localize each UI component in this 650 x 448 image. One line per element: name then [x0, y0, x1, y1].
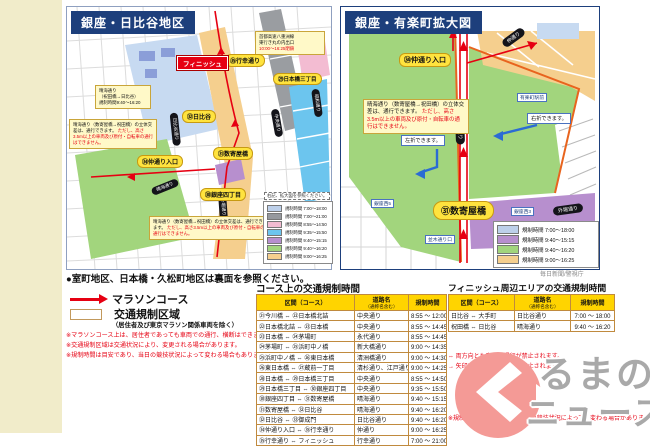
- regulation-zone-icon: [70, 309, 102, 320]
- cell-section: 日比谷 ⇔ 大手町: [449, 311, 515, 321]
- table-row: ㉚銀座四丁目 ⇔ ㉛数寄屋橋晴海通り9:40 〜 15:15: [257, 394, 447, 404]
- kuruma-news-logo: るまの ニュース: [452, 348, 650, 433]
- warning-line: ※規制時間は目安であり、当日の競技状況によって変わる場合もあります。: [66, 351, 277, 361]
- cell-road: 中央通り: [355, 321, 409, 331]
- map-right-title: 銀座・有楽町拡大図: [345, 11, 482, 34]
- legend-swatch: [497, 225, 519, 234]
- legend-row: 規制時間 7:00〜18:00: [497, 225, 595, 234]
- cell-section: ㉛数寄屋橋 ⇔ ㉜日比谷: [257, 404, 355, 414]
- regulation-zone-sub: （居住者及び東京マラソン関係車両を除く）: [112, 320, 238, 329]
- cell-road: 中央通り: [355, 373, 409, 383]
- cell-section: ㉒日本橋北詰 ⇔ ㉓日本橋: [257, 321, 355, 331]
- note-grade-crossing-small: 晴海通り（数寄屋橋→祝田橋）の立体交差は、通行できます。 ただし、高さ3.5m以…: [69, 119, 157, 149]
- callout-sukiyabashi: ㉛数寄屋橋: [433, 201, 494, 220]
- col-time: 規制時間: [409, 295, 447, 311]
- legend-swatch: [267, 253, 282, 260]
- course-table-title: コース上の交通規制時間: [256, 281, 360, 295]
- label-ginza-west5: 銀座西5: [371, 199, 394, 208]
- course-table: 区間（コース） 道路名（通称名含む） 規制時間 ㉑今川橋 ⇔ ㉒日本橋北詰中央通…: [256, 294, 447, 446]
- legend-label: 規制時間 9:40〜15:15: [285, 238, 327, 244]
- cell-section: ㉟行幸通り ⇔ フィニッシュ: [257, 435, 355, 445]
- legend-swatch: [267, 213, 282, 220]
- table-row: ㉘日本橋 ⇔ ㉙日本橋三丁目中央通り8:55 〜 14:50: [257, 373, 447, 383]
- table-row: ㉙日本橋三丁目 ⇔ ㉚銀座四丁目中央通り9:35 〜 15:50: [257, 383, 447, 393]
- cell-time: 9:40 〜 16:20: [571, 321, 615, 331]
- callout-sukiyabashi: ㉛数寄屋橋: [213, 147, 253, 160]
- cell-section: ㉔茅場町 ⇔ ㉕浜町中ノ橋: [257, 342, 355, 352]
- table-row: ㉑今川橋 ⇔ ㉒日本橋北詰中央通り8:55 〜 12:00: [257, 311, 447, 321]
- legend-row: 規制時間 9:00〜16:25: [497, 255, 595, 264]
- note-harumi-line3: 規制時間9:40〜16:20: [99, 100, 147, 106]
- cell-road: 晴海通り: [355, 404, 409, 414]
- map-ginza-hibiya: 銀座・日比谷地区: [66, 6, 332, 270]
- table-row: ㉛数寄屋橋 ⇔ ㉜日比谷晴海通り9:40 〜 16:20: [257, 404, 447, 414]
- marathon-course-label: マラソンコース: [112, 291, 188, 307]
- cell-time: 8:55 〜 14:50: [409, 373, 447, 383]
- cell-road: 清洲橋通り: [355, 352, 409, 362]
- warning-notes: ※マラソンコース上は、居住者であっても車両での通行、横断はできません。 ※交通規…: [66, 331, 277, 360]
- col-section: 区間（コース）: [449, 295, 515, 311]
- logo-text-line2: ニュース: [526, 386, 650, 435]
- legend-label: 規制時間 9:40〜16:20: [522, 246, 574, 254]
- legend-label: 規制時間 7:00〜18:00: [522, 226, 574, 234]
- table-row: ㉜日比谷 ⇔ ㉝御成門日比谷通り9:40 〜 16:20: [257, 414, 447, 424]
- cell-road: 日比谷通り: [515, 311, 571, 321]
- callout-ginza-4chome: ㉚銀座四丁目: [200, 188, 246, 201]
- legend-swatch: [267, 205, 282, 212]
- cell-section: ㉚銀座四丁目 ⇔ ㉛数寄屋橋: [257, 394, 355, 404]
- legend-row: 規制時間 7:00〜21:00: [267, 213, 329, 220]
- legend-note: 右記、拡大図を参照ください。: [264, 192, 330, 200]
- callout-hibiya: ㉜日比谷: [182, 110, 216, 123]
- cell-time: 7:00 〜 18:00: [571, 311, 615, 321]
- legend-label: 規制時間 9:35〜15:50: [285, 230, 327, 236]
- flyer-page: { "page": { "credit": "毎日新聞/警視庁" }, "map…: [0, 0, 650, 433]
- legend-swatch: [267, 229, 282, 236]
- col-road: 道路名（通称名含む）: [515, 295, 571, 311]
- cell-time: 8:55 〜 14:45: [409, 321, 447, 331]
- cell-road: 晴海通り: [355, 394, 409, 404]
- image-credit: 毎日新聞/警視庁: [540, 269, 584, 278]
- cell-section: ㉙日本橋三丁目 ⇔ ㉚銀座四丁目: [257, 383, 355, 393]
- col-time: 規制時間: [571, 295, 615, 311]
- legend-swatch: [497, 255, 519, 264]
- note-harumi-restriction: 晴海通り （祝田橋→日比谷） 規制時間9:40〜16:20: [95, 85, 151, 109]
- note-grade-crossing: 晴海通り（数寄屋橋→祝田橋）の立体交差は、通行できます。 ただし、高さ3.5m以…: [363, 99, 469, 134]
- cell-section: ㉓日本橋 ⇔ ㉔茅場町: [257, 331, 355, 341]
- cell-section: ㉑今川橋 ⇔ ㉒日本橋北詰: [257, 311, 355, 321]
- table-row: ㉕浜町中ノ橋 ⇔ ㉖東日本橋清洲橋通り9:00 〜 14:30: [257, 352, 447, 362]
- cell-section: 祝田橋 ⇔ 日比谷: [449, 321, 515, 331]
- table-row: ㉖東日本橋 ⇔ ㉗蔵前一丁目清杉通り、江戸通り9:00 〜 14:25: [257, 362, 447, 372]
- legend-row: 規制時間 7:00〜18:00: [267, 205, 329, 212]
- legend-swatch: [497, 245, 519, 254]
- label-ginza-west3: 銀座西3: [511, 207, 534, 216]
- legend-row: 規制時間 9:40〜16:20: [497, 245, 595, 254]
- cell-time: 9:40 〜 16:20: [409, 414, 447, 424]
- table-header-row: 区間（コース） 道路名（通称名含む） 規制時間: [449, 295, 615, 311]
- cell-time: 7:00 〜 21:00: [409, 435, 447, 445]
- note-expressway-line3: 10:00〜16:25閉鎖: [259, 46, 321, 52]
- cell-section: ㉜日比谷 ⇔ ㉝御成門: [257, 414, 355, 424]
- callout-gyoko-dori: ㉟行幸通り: [225, 54, 265, 67]
- legend-label: 規制時間 9:40〜16:20: [285, 246, 327, 252]
- table-row: ㉒日本橋北詰 ⇔ ㉓日本橋中央通り8:55 〜 14:45: [257, 321, 447, 331]
- legend-row: 規制時間 9:40〜15:15: [267, 237, 329, 244]
- note-left-turn: 左折できます。: [401, 135, 445, 146]
- cell-road: 行幸通り: [355, 435, 409, 445]
- col-road-sub: （通称名含む）: [357, 304, 406, 310]
- note-right-turn: 右折できます。: [527, 113, 571, 124]
- legend-row: 規制時間 9:00〜16:25: [267, 253, 329, 260]
- cell-time: 9:00 〜 14:35: [409, 342, 447, 352]
- cell-time: 9:35 〜 15:50: [409, 383, 447, 393]
- cell-time: 9:40 〜 16:20: [409, 404, 447, 414]
- legend-label: 規制時間 7:00〜21:00: [285, 214, 327, 220]
- col-road: 道路名（通称名含む）: [355, 295, 409, 311]
- table-row: ㉓日本橋 ⇔ ㉔茅場町永代通り8:55 〜 14:45: [257, 331, 447, 341]
- cell-time: 9:40 〜 15:15: [409, 394, 447, 404]
- table-row: ㉔茅場町 ⇔ ㉕浜町中ノ橋新大橋通り9:00 〜 14:35: [257, 342, 447, 352]
- cell-road: 清杉通り、江戸通り: [355, 362, 409, 372]
- note-grade-wide-red: ただし、高さ3.5m以上の車両及び原付・自転車の通行はできません。: [153, 225, 265, 236]
- table-row: 日比谷 ⇔ 大手町日比谷通り7:00 〜 18:00: [449, 311, 615, 321]
- warning-line: ※マラソンコース上は、居住者であっても車両での通行、横断はできません。: [66, 331, 277, 341]
- callout-nakadori-iriguchi: ㉞仲通り入口: [399, 53, 451, 67]
- cell-time: 9:00 〜 16:25: [409, 425, 447, 435]
- legend-label: 規制時間 9:00〜16:25: [522, 256, 574, 264]
- legend-label: 規制時間 8:55〜14:50: [285, 222, 327, 228]
- finish-table-title: フィニッシュ周辺エリアの交通規制時間: [448, 281, 606, 294]
- cell-time: 8:55 〜 12:00: [409, 311, 447, 321]
- cell-road: 新大橋通り: [355, 342, 409, 352]
- map-left-legend: 規制時間 7:00〜18:00 規制時間 7:00〜21:00 規制時間 8:5…: [263, 201, 333, 264]
- legend-label: 規制時間 9:00〜16:25: [285, 254, 327, 260]
- course-key-row: マラソンコース: [70, 291, 188, 307]
- legend-row: 規制時間 9:35〜15:50: [267, 229, 329, 236]
- cell-road: 中央通り: [355, 383, 409, 393]
- legend-label: 規制時間 9:40〜15:15: [522, 236, 574, 244]
- legend-row: 規制時間 9:40〜16:20: [267, 245, 329, 252]
- cell-section: ㉕浜町中ノ橋 ⇔ ㉖東日本橋: [257, 352, 355, 362]
- cell-road: 日比谷通り: [355, 414, 409, 424]
- cell-section: ㉘日本橋 ⇔ ㉙日本橋三丁目: [257, 373, 355, 383]
- legend-swatch: [267, 245, 282, 252]
- table-row: ㉞仲通り入口 ⇔ ㉟行幸通り仲通り9:00 〜 16:25: [257, 425, 447, 435]
- legend-label: 規制時間 7:00〜18:00: [285, 206, 327, 212]
- legend-swatch: [267, 221, 282, 228]
- zone-blue-small: [537, 23, 579, 39]
- cell-road: 中央通り: [355, 311, 409, 321]
- legend-swatch: [497, 235, 519, 244]
- cell-road: 永代通り: [355, 331, 409, 341]
- cell-time: 9:00 〜 14:25: [409, 362, 447, 372]
- map-left-title: 銀座・日比谷地区: [71, 11, 195, 34]
- cell-section: ㉞仲通り入口 ⇔ ㉟行幸通り: [257, 425, 355, 435]
- cell-section: ㉖東日本橋 ⇔ ㉗蔵前一丁目: [257, 362, 355, 372]
- col-road-sub: （通称名含む）: [517, 304, 568, 310]
- finish-table: 区間（コース） 道路名（通称名含む） 規制時間 日比谷 ⇔ 大手町日比谷通り7:…: [448, 294, 615, 332]
- callout-nakadori-iriguchi: ㉞仲通り入口: [137, 155, 183, 168]
- finish-label: フィニッシュ: [177, 56, 228, 70]
- note-expressway: 首都高速八重洲線 東行き丸の内出口 10:00〜16:25閉鎖: [255, 31, 325, 55]
- cell-road: 仲通り: [355, 425, 409, 435]
- cell-road: 晴海通り: [515, 321, 571, 331]
- legend-row: 規制時間 9:40〜15:15: [497, 235, 595, 244]
- legend-swatch: [267, 237, 282, 244]
- map-right-legend: 規制時間 7:00〜18:00 規制時間 9:40〜15:15 規制時間 9:4…: [493, 221, 599, 268]
- cell-time: 8:55 〜 14:45: [409, 331, 447, 341]
- col-section: 区間（コース）: [257, 295, 355, 311]
- legend-row: 規制時間 8:55〜14:50: [267, 221, 329, 228]
- label-namiki-dori-guchi: 並木通り口: [425, 235, 455, 244]
- marathon-course-arrow-icon: [70, 298, 100, 301]
- map-ginza-yurakucho-zoom: 銀座・有楽町拡大図: [340, 6, 600, 270]
- warning-line: ※交通規制区域は交通状況により、変更される場合があります。: [66, 341, 277, 351]
- page-left-margin-strip: [0, 0, 62, 433]
- table-row: 祝田橋 ⇔ 日比谷晴海通り9:40 〜 16:20: [449, 321, 615, 331]
- table-row: ㉟行幸通り ⇔ フィニッシュ行幸通り7:00 〜 21:00: [257, 435, 447, 445]
- cell-time: 9:00 〜 14:30: [409, 352, 447, 362]
- label-yurakucho-ekimae: 有楽町駅前: [517, 93, 547, 102]
- callout-nihonbashi-3chome: ㉙日本橋三丁目: [273, 73, 322, 85]
- table-header-row: 区間（コース） 道路名（通称名含む） 規制時間: [257, 295, 447, 311]
- note-grade-crossing-wide: 晴海通り（数寄屋橋→祝田橋）の立体交差は、通行できます。 ただし、高さ3.5m以…: [149, 216, 269, 240]
